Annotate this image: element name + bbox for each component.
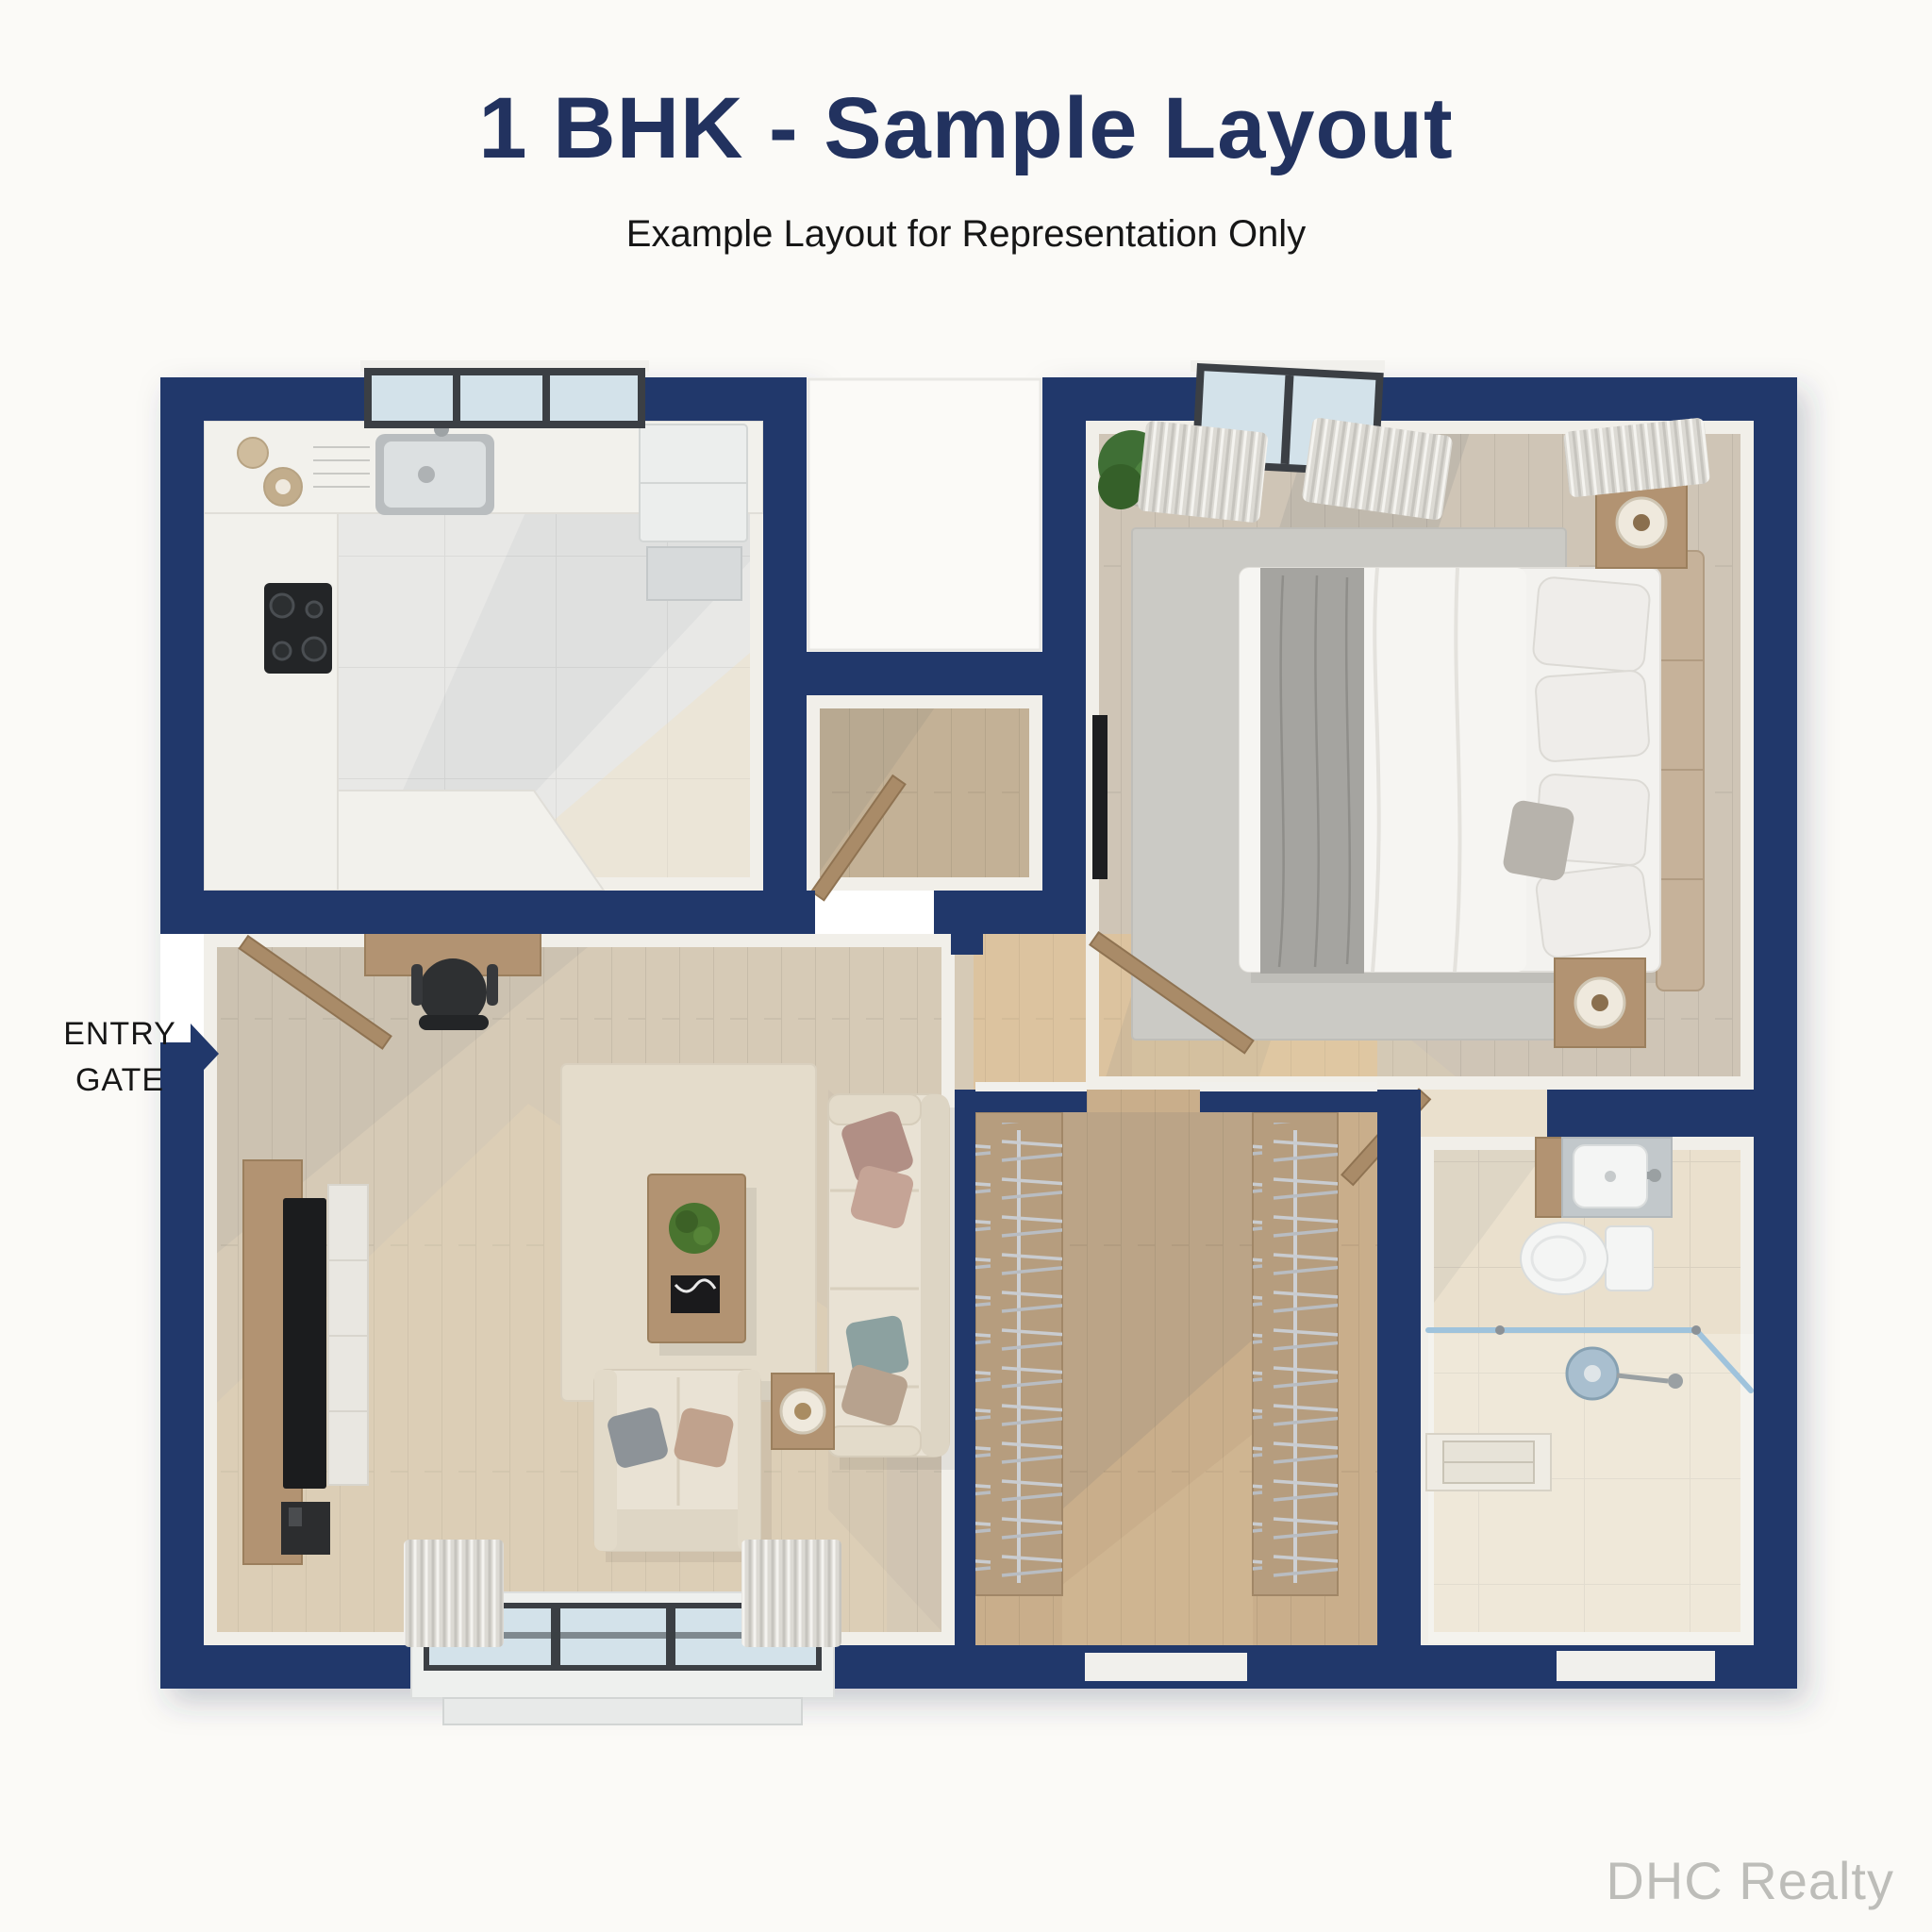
side-table: [772, 1374, 834, 1449]
bedroom-wall-tv: [1092, 715, 1108, 879]
kitchen-counter-left: [204, 513, 338, 891]
coffee-table: [648, 1174, 757, 1356]
refrigerator: [640, 425, 747, 541]
watermark: DHC Realty: [1606, 1850, 1894, 1911]
nightstand-bottom: [1555, 958, 1645, 1047]
vanity-sink: [1536, 1138, 1672, 1217]
bed: [1240, 551, 1704, 991]
kitchen-window: [360, 360, 649, 428]
loveseat: [594, 1370, 772, 1562]
wardrobe-window-sill: [1085, 1653, 1247, 1681]
entry-gate-label: ENTRY GATE: [49, 1011, 191, 1105]
toilet: [1521, 1223, 1653, 1294]
cooktop: [264, 583, 332, 674]
floor-plan-drawing: [0, 0, 1932, 1932]
table-tray: [671, 1275, 720, 1313]
open-void: [807, 377, 1042, 652]
sofa-main: [828, 1094, 962, 1470]
shower: [1426, 1325, 1754, 1643]
entry-gate-line2: GATE: [49, 1058, 191, 1104]
tv-screen: [283, 1198, 326, 1489]
floor-plan-page: 1 BHK - Sample Layout Example Layout for…: [0, 0, 1932, 1932]
entry-gate-line1: ENTRY: [49, 1011, 191, 1058]
bathroom-window-sill: [1557, 1651, 1715, 1681]
kitchen-appliance: [647, 547, 741, 600]
